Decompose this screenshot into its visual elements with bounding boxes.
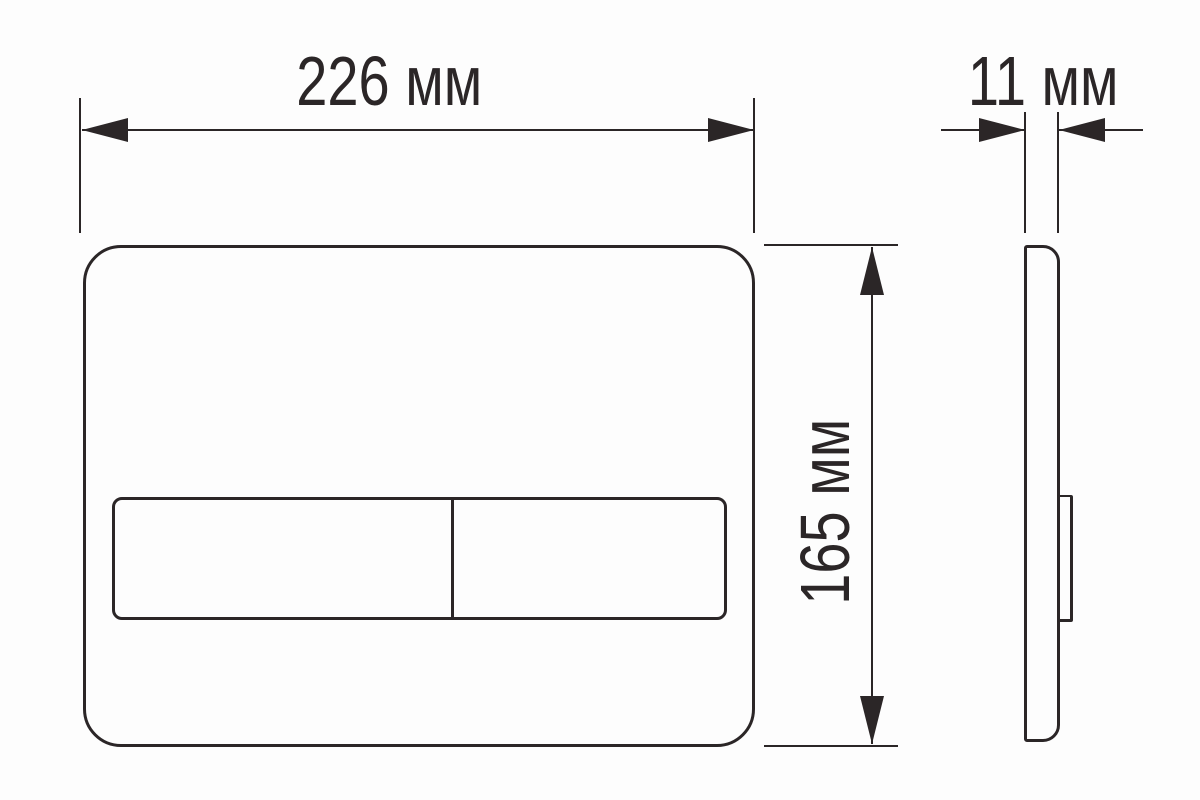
height-arrowhead-top (860, 247, 884, 295)
height-extension-line-bottom (764, 745, 898, 747)
width-arrowhead-left (82, 118, 128, 142)
depth-dimension-label: 11 мм (893, 46, 1193, 116)
width-dimension-text: 226 мм (296, 46, 482, 116)
width-arrowhead-right (708, 118, 754, 142)
height-arrowhead-bottom (860, 696, 884, 744)
height-dimension-label: 165 мм (790, 362, 860, 662)
depth-arrowhead-left (979, 118, 1025, 142)
depth-arrowhead-right (1059, 118, 1105, 142)
flush-buttons-divider (451, 499, 454, 618)
width-extension-line-left (79, 98, 81, 233)
height-dimension-text: 165 мм (790, 419, 860, 605)
side-view-button-protrusion (1057, 495, 1073, 622)
depth-dimension-text: 11 мм (968, 46, 1119, 116)
side-view-profile (1024, 245, 1060, 742)
height-extension-line-top (764, 244, 898, 246)
dual-flush-buttons-outline (112, 497, 727, 620)
front-view-plate (83, 245, 755, 747)
width-dimension-label: 226 мм (81, 46, 753, 116)
height-dimension-line (871, 247, 873, 744)
width-dimension-line (82, 129, 754, 131)
flush-plate-dimension-drawing: 226 мм 165 мм 11 мм (0, 0, 1200, 800)
